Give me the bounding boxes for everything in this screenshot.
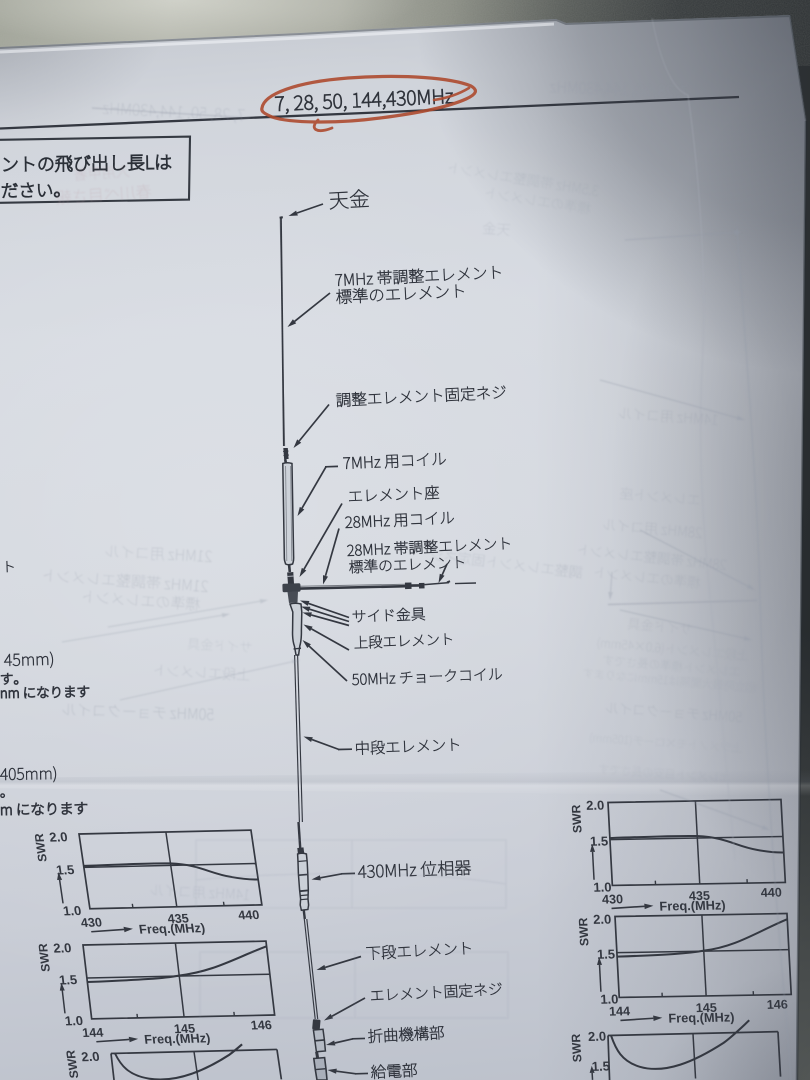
svg-text:SWR: SWR (63, 1050, 81, 1079)
svg-text:SWR: SWR (36, 943, 53, 972)
svg-text:2.0: 2.0 (586, 798, 605, 813)
svg-text:146: 146 (250, 1018, 273, 1032)
svg-text:2.0: 2.0 (80, 1049, 100, 1064)
svg-text:Freq.(MHz): Freq.(MHz) (138, 920, 206, 936)
svg-text:SWR: SWR (32, 833, 50, 862)
svg-text:Freq.(MHz): Freq.(MHz) (659, 897, 726, 913)
svg-text:440: 440 (237, 908, 260, 922)
svg-text:SWR: SWR (576, 917, 591, 946)
svg-text:2.0: 2.0 (588, 1029, 607, 1044)
svg-text:2.0: 2.0 (52, 940, 72, 955)
svg-text:430: 430 (602, 892, 624, 906)
svg-text:440: 440 (760, 885, 782, 899)
svg-text:1.5: 1.5 (591, 1058, 610, 1073)
svg-text:144: 144 (609, 1004, 631, 1018)
svg-text:2.0: 2.0 (48, 829, 68, 844)
svg-text:144: 144 (81, 1026, 104, 1040)
svg-text:SWR: SWR (569, 1033, 585, 1062)
svg-text:430: 430 (80, 916, 103, 930)
svg-text:Freq.(MHz): Freq.(MHz) (668, 1009, 735, 1025)
svg-text:Freq.(MHz): Freq.(MHz) (143, 1030, 211, 1046)
svg-text:SWR: SWR (569, 804, 584, 833)
svg-text:2.0: 2.0 (593, 912, 612, 927)
